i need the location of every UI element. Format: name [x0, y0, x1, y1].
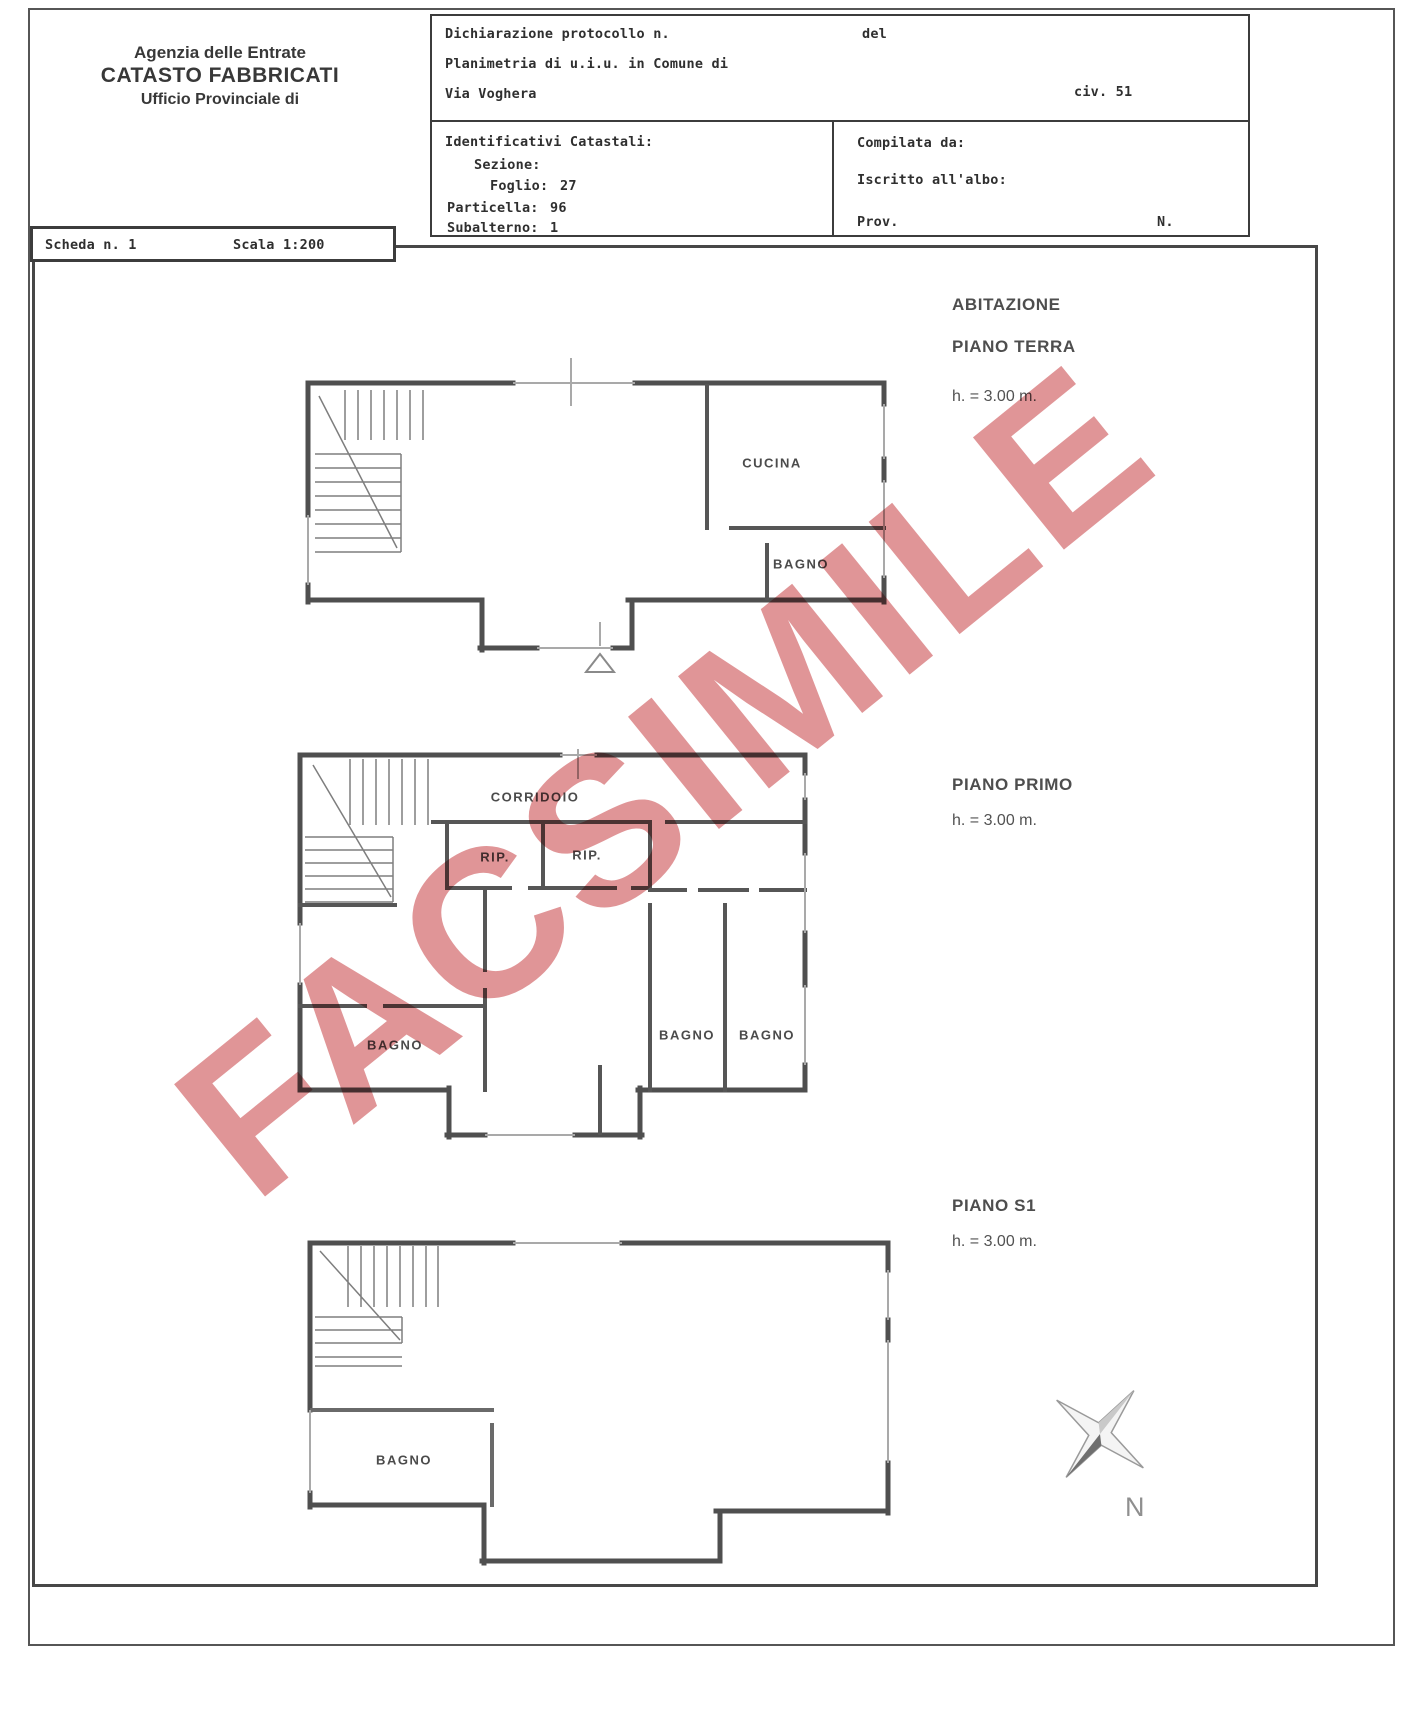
plan-s1-title: PIANO S1 — [952, 1196, 1036, 1216]
provincial-office-label: Ufficio Provinciale di — [55, 90, 385, 110]
room-label-cucina: CUCINA — [742, 456, 802, 471]
entrance-arrow-icon — [586, 654, 614, 672]
planimetry-label: Planimetria di u.i.u. in Comune di — [445, 56, 728, 72]
plan-ground-title-line2: PIANO TERRA — [952, 337, 1076, 357]
plan-ground-title-line1: ABITAZIONE — [952, 295, 1061, 315]
room-label-rip-2: RIP. — [572, 848, 602, 863]
scale-label: Scala 1:200 — [233, 237, 325, 253]
plan-ground-drawing — [285, 340, 905, 685]
n-label: N. — [1157, 214, 1174, 230]
header-agency: Agenzia delle Entrate CATASTO FABBRICATI… — [55, 42, 385, 110]
plan-first-drawing — [285, 745, 825, 1145]
particella-value: 96 — [550, 200, 567, 216]
stairs-hatch — [315, 390, 423, 552]
agency-name: Agenzia delle Entrate — [55, 42, 385, 63]
foglio-label: Foglio: — [490, 178, 548, 194]
registered-label: Iscritto all'albo: — [857, 172, 1007, 188]
form-horizontal-divider — [432, 120, 1248, 122]
street-value: Via Voghera — [445, 86, 537, 102]
cadastral-document-page: { "header": { "line1": "Agenzia delle En… — [0, 0, 1425, 1716]
outer-walls — [308, 383, 884, 650]
plan-first-title: PIANO PRIMO — [952, 775, 1073, 795]
plan-s1-drawing — [290, 1235, 905, 1570]
room-label-rip-1: RIP. — [480, 850, 510, 865]
room-label-bagno-s1: BAGNO — [376, 1453, 432, 1468]
scheda-number-label: Scheda n. 1 — [45, 237, 137, 253]
subalterno-value: 1 — [550, 220, 558, 236]
del-label: del — [862, 26, 887, 42]
sezione-label: Sezione: — [474, 157, 541, 173]
foglio-value: 27 — [560, 178, 577, 194]
form-box: Dichiarazione protocollo n. del Planimet… — [430, 14, 1250, 237]
room-label-bagno-ground: BAGNO — [773, 557, 829, 572]
room-label-corridoio: CORRIDOIO — [491, 790, 580, 805]
cadastral-ids-label: Identificativi Catastali: — [445, 134, 653, 150]
room-label-bagno-first-left: BAGNO — [367, 1038, 423, 1053]
compiled-by-label: Compilata da: — [857, 135, 965, 151]
civic-number-value: civ. 51 — [1074, 84, 1132, 100]
prov-label: Prov. — [857, 214, 899, 230]
scheda-box: Scheda n. 1 Scala 1:200 — [30, 226, 396, 262]
outer-walls — [310, 1243, 888, 1563]
declaration-protocol-label: Dichiarazione protocollo n. — [445, 26, 670, 42]
catasto-title: CATASTO FABBRICATI — [55, 63, 385, 89]
window-lines — [308, 358, 884, 648]
stairs-hatch — [315, 1246, 438, 1366]
north-label: N — [1125, 1492, 1145, 1523]
stairs-hatch — [305, 759, 428, 902]
plan-first-height: h. = 3.00 m. — [952, 812, 1037, 830]
interior-walls — [300, 822, 805, 1133]
form-vertical-divider — [832, 120, 834, 235]
plan-ground-height: h. = 3.00 m. — [952, 388, 1037, 406]
room-label-bagno-first-right: BAGNO — [739, 1028, 795, 1043]
subalterno-label: Subalterno: — [447, 220, 539, 236]
particella-label: Particella: — [447, 200, 539, 216]
room-label-bagno-first-mid: BAGNO — [659, 1028, 715, 1043]
compass-rose-icon — [1030, 1372, 1200, 1542]
plan-s1-height: h. = 3.00 m. — [952, 1233, 1037, 1251]
